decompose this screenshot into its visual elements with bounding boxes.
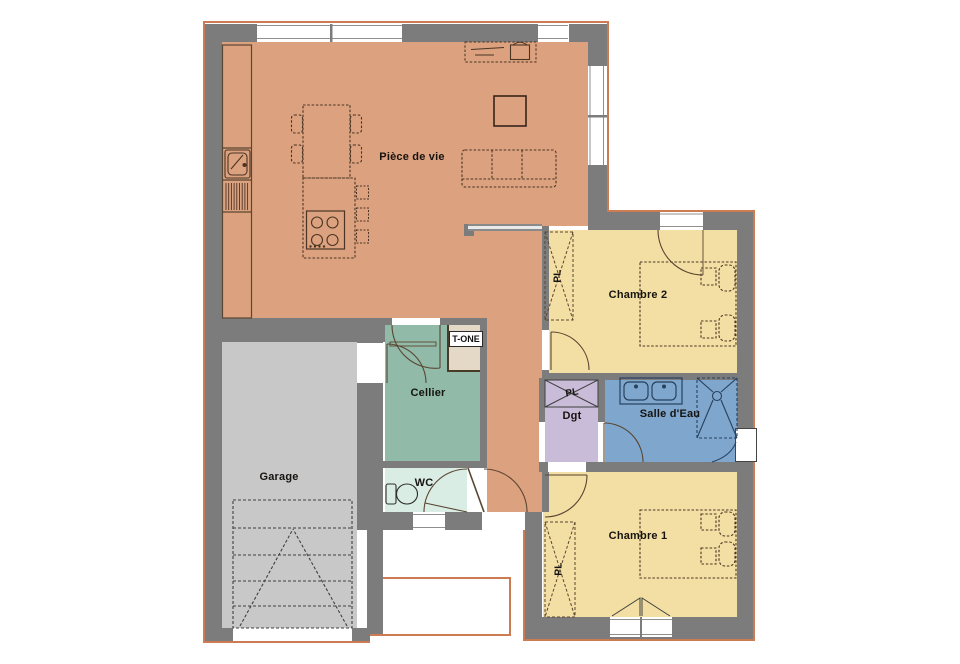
wall bbox=[357, 383, 383, 530]
porch-slab-bottom bbox=[367, 634, 511, 636]
window-chambre1 bbox=[610, 617, 672, 637]
wall bbox=[383, 461, 487, 468]
label-garage: Garage bbox=[259, 471, 298, 483]
window-living-top bbox=[257, 24, 402, 42]
outline-garage-bottom bbox=[203, 641, 370, 643]
label-t-one: T-ONE bbox=[449, 331, 483, 347]
wall bbox=[586, 462, 737, 472]
door-gap-chambre2 bbox=[542, 330, 549, 370]
label-pl-chambre1: PL bbox=[554, 562, 565, 575]
room-wc-floor bbox=[385, 468, 467, 512]
label-dgt: Dgt bbox=[563, 410, 582, 422]
wall bbox=[383, 318, 392, 325]
porch-slab-right bbox=[509, 577, 511, 636]
wall bbox=[539, 378, 545, 422]
window-living-right bbox=[588, 66, 607, 165]
outline-right bbox=[753, 210, 755, 641]
room-chambre1-floor bbox=[543, 472, 737, 617]
label-salle-deau: Salle d'Eau bbox=[640, 408, 700, 420]
door-gap-wc bbox=[467, 468, 487, 512]
wall bbox=[737, 212, 753, 639]
door-gap-garage-cellier bbox=[357, 343, 383, 383]
wall bbox=[205, 318, 385, 342]
window-salle-deau bbox=[735, 428, 757, 462]
wall bbox=[539, 462, 548, 472]
wall bbox=[543, 373, 737, 380]
label-wc: WC bbox=[415, 477, 434, 489]
opening-lintel bbox=[468, 224, 542, 231]
front-door-opening bbox=[482, 512, 525, 530]
wall bbox=[367, 530, 383, 634]
garage-door-opening bbox=[233, 628, 352, 641]
room-garage-floor bbox=[222, 342, 357, 628]
label-piece-de-vie: Pièce de vie bbox=[379, 151, 444, 163]
wall bbox=[542, 226, 549, 330]
room-kitchen-floor bbox=[222, 42, 480, 318]
room-chambre2-floor bbox=[549, 230, 737, 373]
door-gap-chambre1 bbox=[548, 462, 586, 472]
label-pl-dgt: PL bbox=[565, 386, 580, 399]
wall bbox=[445, 512, 482, 530]
door-gap-dgt bbox=[539, 422, 545, 462]
label-chambre2: Chambre 2 bbox=[609, 289, 668, 301]
wall bbox=[542, 472, 549, 512]
outline-top bbox=[203, 21, 609, 23]
wall bbox=[598, 378, 605, 422]
wall bbox=[525, 512, 542, 639]
outline-wing-bottom bbox=[523, 639, 755, 641]
door-gap-kitchen-cellier bbox=[392, 318, 440, 325]
label-cellier: Cellier bbox=[410, 387, 445, 399]
window-chambre2 bbox=[660, 212, 703, 230]
window-wc bbox=[413, 512, 445, 530]
outline-living-right bbox=[607, 21, 609, 212]
label-pl-chambre2: PL bbox=[553, 269, 564, 282]
porch-slab-top bbox=[383, 577, 511, 579]
floor-plan: Pièce de vie Cellier WC Garage Chambre 2… bbox=[0, 0, 960, 664]
wall bbox=[383, 512, 413, 530]
door-gap-salle-deau bbox=[598, 422, 605, 462]
room-salle-deau-floor bbox=[603, 378, 737, 462]
label-chambre1: Chambre 1 bbox=[609, 530, 668, 542]
window-living-top-2 bbox=[538, 24, 569, 42]
